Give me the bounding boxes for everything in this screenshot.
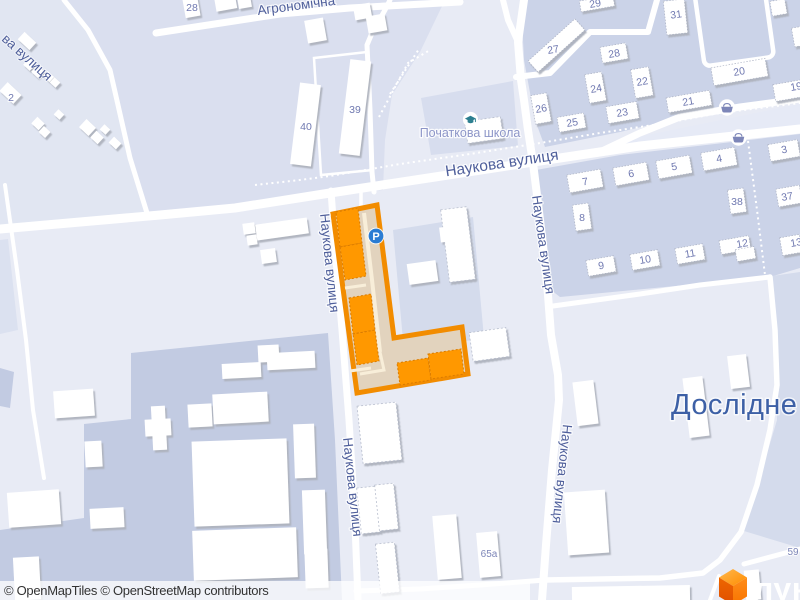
svg-text:65а: 65а <box>481 549 498 560</box>
svg-text:12: 12 <box>735 237 749 251</box>
svg-text:26: 26 <box>534 102 548 116</box>
svg-text:25: 25 <box>565 116 579 130</box>
svg-text:22: 22 <box>635 75 649 89</box>
svg-text:24: 24 <box>589 82 603 96</box>
svg-text:23: 23 <box>615 106 629 120</box>
svg-text:Дослідне: Дослідне <box>671 389 797 421</box>
svg-text:40: 40 <box>300 121 312 133</box>
svg-text:11: 11 <box>684 247 697 261</box>
svg-text:38: 38 <box>731 196 743 208</box>
svg-text:2: 2 <box>8 92 14 104</box>
svg-text:лун: лун <box>753 571 800 600</box>
svg-text:8: 8 <box>579 212 585 224</box>
svg-text:59: 59 <box>787 547 799 558</box>
svg-text:20: 20 <box>732 65 746 79</box>
svg-text:28: 28 <box>607 47 621 61</box>
svg-text:39: 39 <box>349 104 361 116</box>
svg-text:19: 19 <box>789 80 800 94</box>
svg-text:28: 28 <box>186 2 198 14</box>
svg-text:31: 31 <box>670 8 683 22</box>
svg-text:13: 13 <box>789 236 800 250</box>
svg-text:21: 21 <box>681 95 695 109</box>
svg-text:27: 27 <box>546 43 560 57</box>
svg-text:© OpenMapTiles © OpenStreetMap: © OpenMapTiles © OpenStreetMap contribut… <box>4 583 269 598</box>
svg-text:Початкова школа: Початкова школа <box>420 126 521 140</box>
svg-text:P: P <box>372 231 379 243</box>
svg-text:37: 37 <box>780 190 794 204</box>
svg-text:10: 10 <box>638 253 652 267</box>
